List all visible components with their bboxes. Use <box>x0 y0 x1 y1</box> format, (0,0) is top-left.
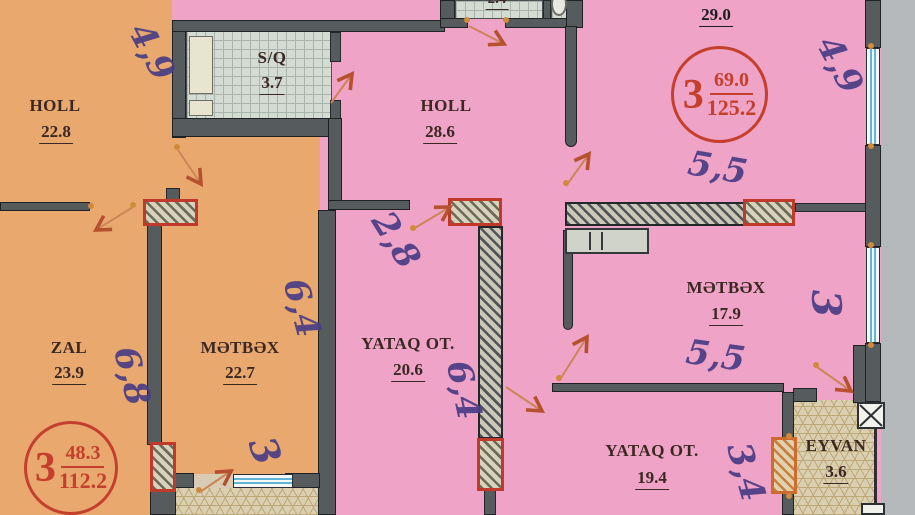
stamp-total-area: 125.2 <box>707 95 757 120</box>
room-area: 28.6 <box>423 122 457 144</box>
balcony-left-floor <box>172 485 320 515</box>
counter-divider <box>589 232 591 250</box>
eyvan-door-marker <box>771 437 797 494</box>
room-area: 29.0 <box>699 5 733 27</box>
room-label: ZAL <box>51 338 87 358</box>
wall <box>552 383 784 392</box>
bathroom-door-leaf <box>189 36 213 94</box>
room-area: 17.9 <box>709 304 743 326</box>
window <box>866 247 880 343</box>
door-marker <box>448 198 502 226</box>
wall <box>330 100 341 120</box>
handwritten-dimension: 3 <box>802 289 850 318</box>
stamp-room-count: 3 <box>35 447 56 489</box>
wall <box>150 490 176 515</box>
room-label: YATAQ OT. <box>361 334 455 354</box>
shaft-symbol-partial <box>861 503 885 515</box>
wall <box>795 203 867 212</box>
wall <box>566 0 583 28</box>
shaft-x-icon <box>859 404 883 427</box>
hatched-wall-horizontal <box>565 202 745 226</box>
room-area: 22.8 <box>39 122 73 144</box>
room-area: 2.4 <box>486 0 509 10</box>
apartment-divider-wall <box>318 210 336 515</box>
apartment-stamp-left: 3 48.3 112.2 <box>24 421 118 515</box>
shaft-symbol <box>857 402 885 429</box>
room-area: 3.7 <box>259 73 284 95</box>
exterior-wall-right <box>865 343 881 402</box>
wall <box>565 26 577 147</box>
kitchen-counter <box>565 228 649 254</box>
stamp-room-count: 3 <box>683 74 704 116</box>
wall <box>793 388 817 402</box>
stamp-net-area: 69.0 <box>710 69 753 95</box>
stamp-total-area: 112.2 <box>59 468 107 493</box>
handwritten-dimension: 5,5 <box>684 332 748 380</box>
room-area: 19.4 <box>635 468 669 490</box>
window <box>866 48 880 145</box>
room-area: 23.9 <box>52 363 86 385</box>
room-label: MƏTBƏX <box>686 278 765 298</box>
door-marker <box>743 199 795 226</box>
exterior-wall-right <box>865 0 881 48</box>
door-marker <box>477 438 504 491</box>
room-label: HOLL <box>420 96 471 116</box>
wall <box>172 20 445 32</box>
stamp-areas: 69.0 125.2 <box>707 69 757 120</box>
apartment-stamp-right: 3 69.0 125.2 <box>671 46 768 143</box>
room-label: YATAQ OT. <box>605 441 699 461</box>
room-area: 20.6 <box>391 360 425 382</box>
door-marker <box>150 442 176 492</box>
wall <box>174 473 194 488</box>
room-label: MƏTBƏX <box>200 338 279 358</box>
wall <box>328 118 342 210</box>
room-label: S/Q <box>258 48 287 68</box>
wall <box>147 224 162 445</box>
room-label: HOLL <box>29 96 80 116</box>
bathroom-door-leaf-small <box>189 100 213 116</box>
door-marker <box>143 199 198 226</box>
room-label: EYVAN <box>806 436 867 456</box>
stamp-net-area: 48.3 <box>61 442 104 468</box>
window <box>233 474 293 488</box>
wall <box>484 490 496 515</box>
room-area: 22.7 <box>223 363 257 385</box>
wall <box>172 118 338 137</box>
exterior-wall-right <box>865 145 881 247</box>
wall <box>440 18 468 28</box>
stamp-areas: 48.3 112.2 <box>59 442 107 493</box>
wall <box>543 0 551 19</box>
counter-divider <box>601 232 603 250</box>
wall <box>0 202 90 211</box>
balcony-door-threshold <box>193 474 233 488</box>
floor-plan: HOLL 22.8 S/Q 3.7 ZAL 23.9 MƏTBƏX 22.7 H… <box>0 0 915 515</box>
wall <box>330 32 341 62</box>
room-area: 3.6 <box>823 462 848 484</box>
